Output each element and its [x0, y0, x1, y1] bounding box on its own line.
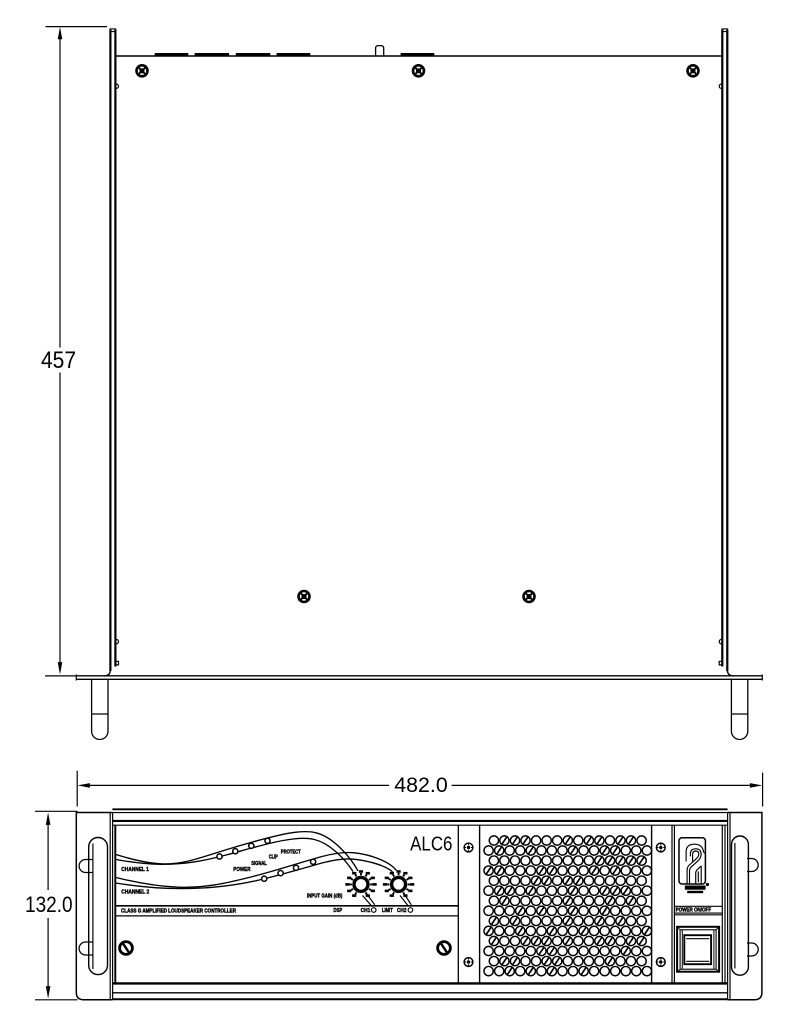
svg-text:CLASS G AMPLIFIED LOUDSPEAKER: CLASS G AMPLIFIED LOUDSPEAKER CONTROLLER: [121, 909, 236, 915]
svg-text:CH2: CH2: [397, 908, 407, 914]
svg-text:PROTECT: PROTECT: [281, 849, 301, 855]
svg-text:ALC6: ALC6: [410, 833, 452, 855]
svg-text:LIMIT: LIMIT: [382, 908, 393, 914]
svg-text:CLIP: CLIP: [269, 855, 279, 861]
svg-text:132.0: 132.0: [25, 892, 73, 917]
svg-text:POWER ON/OFF: POWER ON/OFF: [676, 908, 712, 914]
svg-text:DSP: DSP: [333, 908, 342, 914]
svg-text:SIGNAL: SIGNAL: [251, 861, 266, 867]
svg-text:INPUT GAIN (dB): INPUT GAIN (dB): [307, 894, 343, 900]
svg-text:POWER: POWER: [233, 867, 251, 873]
svg-text:CHANNEL 2: CHANNEL 2: [121, 889, 149, 895]
svg-text:482.0: 482.0: [394, 774, 448, 797]
svg-text:457: 457: [41, 347, 76, 374]
svg-text:CH1: CH1: [361, 908, 371, 914]
svg-text:CHANNEL 1: CHANNEL 1: [121, 867, 149, 873]
